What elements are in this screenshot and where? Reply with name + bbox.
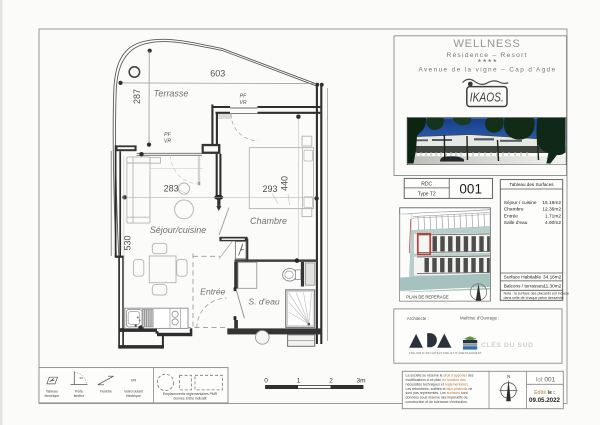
svg-text:1.71m2: 1.71m2 <box>545 213 561 219</box>
svg-text:34.16m2: 34.16m2 <box>543 274 562 279</box>
svg-text:Chambre: Chambre <box>250 216 287 226</box>
svg-text:S. d'eau: S. d'eau <box>248 297 279 307</box>
svg-text:Tableau des Surfaces: Tableau des Surfaces <box>509 182 554 187</box>
svg-text:Terrasse: Terrasse <box>154 89 189 99</box>
svg-text:PLAN DE REPERAGE: PLAN DE REPERAGE <box>406 295 449 300</box>
svg-text:fenêtre: fenêtre <box>74 394 85 398</box>
svg-text:Avenue de la vigne – Cap d'Agd: Avenue de la vigne – Cap d'Agde <box>419 67 557 74</box>
svg-text:VR: VR <box>239 100 246 106</box>
svg-text:CLÉS DU SUD: CLÉS DU SUD <box>481 340 534 349</box>
svg-text:Maîtrise d'Ouvrage :: Maîtrise d'Ouvrage : <box>460 315 499 320</box>
svg-text:530: 530 <box>123 235 133 250</box>
svg-text:Salle d'eau: Salle d'eau <box>504 220 528 226</box>
svg-text:PF: PF <box>164 132 171 138</box>
svg-text:VR: VR <box>131 377 137 382</box>
svg-text:La société se réserve le droit: La société se réserve le droit d'apporte… <box>406 374 474 378</box>
svg-text:Fenêtre: Fenêtre <box>100 390 112 394</box>
svg-text:Séjour / cuisine: Séjour / cuisine <box>504 200 537 206</box>
svg-text:ATELIER D'ARCHITECTURE ET D'AM: ATELIER D'ARCHITECTURE ET D'AMENAGEMENT <box>409 351 482 355</box>
svg-text:PF: PF <box>240 94 247 100</box>
svg-text:283: 283 <box>164 183 179 193</box>
svg-text:4.90m2: 4.90m2 <box>545 220 561 226</box>
svg-text:modifications à ce plan en fon: modifications à ce plan en fonction des <box>406 378 467 382</box>
svg-text:Type T2: Type T2 <box>418 191 436 197</box>
svg-text:IKAOS.: IKAOS. <box>470 91 504 105</box>
svg-text:15.19m2: 15.19m2 <box>542 200 561 206</box>
svg-text:Les retombées, soffites et fau: Les retombées, soffites et faux-plafonds… <box>406 387 473 391</box>
svg-text:données sous réserve des impér: données sous réserve des impératifs de <box>406 396 468 400</box>
svg-text:2: 2 <box>329 377 333 384</box>
svg-text:293: 293 <box>262 184 277 194</box>
svg-text:09.05.2022: 09.05.2022 <box>529 397 561 404</box>
svg-text:Balcons / terrasses: Balcons / terrasses <box>504 284 545 289</box>
svg-text:440: 440 <box>280 176 290 191</box>
svg-text:1: 1 <box>297 377 301 384</box>
svg-text:WELLNESS: WELLNESS <box>453 38 520 50</box>
svg-text:sont pas représentés. Les surf: sont pas représentés. Les surfaces sont <box>406 391 468 395</box>
svg-text:Architecte :: Architecte : <box>407 316 429 321</box>
svg-text:Entrée: Entrée <box>200 286 226 296</box>
svg-text:Entrée: Entrée <box>504 213 518 219</box>
svg-text:lot 001: lot 001 <box>536 376 556 383</box>
svg-text:VR: VR <box>164 138 171 144</box>
svg-text:construction et de tolérance d: construction et de tolérance d'exécution… <box>406 400 469 404</box>
svg-text:90: 90 <box>80 376 84 380</box>
svg-text:12.36m2: 12.36m2 <box>542 207 561 213</box>
svg-text:N: N <box>507 374 510 379</box>
svg-text:11.30m2: 11.30m2 <box>543 284 561 289</box>
svg-text:RDC: RDC <box>421 182 432 188</box>
svg-text:Surface Habitable: Surface Habitable <box>504 274 542 279</box>
svg-text:3m: 3m <box>356 377 365 384</box>
svg-text:nécessités techniques et régle: nécessités techniques et réglementaires. <box>406 382 469 386</box>
svg-text:001: 001 <box>459 182 482 197</box>
svg-text:Chambre: Chambre <box>504 207 524 213</box>
svg-text:Séjour/cuisine: Séjour/cuisine <box>150 225 207 235</box>
svg-text:Edité le :: Edité le : <box>534 390 555 396</box>
svg-text:donnés à titre indicatif: donnés à titre indicatif <box>174 396 207 400</box>
svg-text:0: 0 <box>264 377 268 384</box>
svg-text:603: 603 <box>210 69 225 79</box>
svg-text:électrique: électrique <box>44 394 59 398</box>
svg-text:dans celle de chaque pièce des: dans celle de chaque pièce desservie. <box>504 296 565 300</box>
svg-text:électrique: électrique <box>126 394 141 398</box>
svg-text:287: 287 <box>132 89 142 104</box>
